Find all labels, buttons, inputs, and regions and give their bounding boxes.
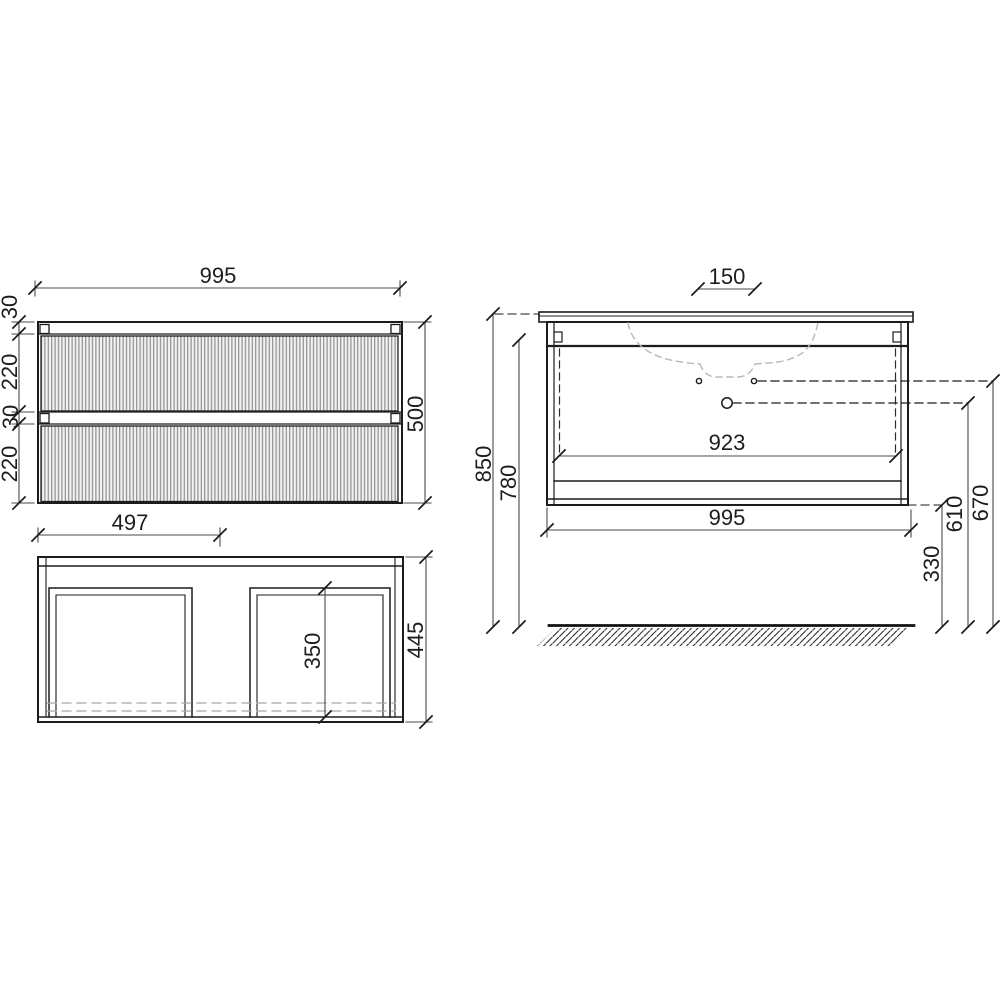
dim-label-elev-drain-height: 610 <box>944 496 966 533</box>
dim-label-elev-basin-height: 850 <box>473 446 495 483</box>
left-fixing-hole <box>696 378 701 383</box>
dim-label-front-overall-height: 500 <box>405 396 427 433</box>
dim-label-front-upper-drawer: 220 <box>0 354 21 391</box>
drain-hole <box>722 398 732 408</box>
dim-label-front-lower-drawer: 220 <box>0 446 21 483</box>
plan-view-carcass <box>38 557 403 722</box>
mid-rail-left-block <box>40 414 49 424</box>
dim-label-elev-carcass-height: 780 <box>498 465 520 502</box>
elevation-view <box>487 283 999 646</box>
right-hanger-bracket <box>893 332 901 342</box>
dim-label-plan-drawer-width: 497 <box>112 512 149 534</box>
dim-label-elev-tap-spacing: 150 <box>709 266 746 288</box>
dim-label-elev-inner-width: 923 <box>709 432 746 454</box>
plan-view <box>32 528 432 728</box>
dim-label-elev-supply-height: 670 <box>970 485 992 522</box>
right-fixing-hole <box>751 378 756 383</box>
top-rail-right-block <box>391 325 400 334</box>
dim-label-front-overall-width: 995 <box>200 265 237 287</box>
left-hanger-bracket <box>554 332 562 342</box>
front-view-cabinet <box>38 322 402 503</box>
washbasin-top <box>539 312 913 322</box>
dim-label-elev-clearance: 330 <box>921 546 943 583</box>
dim-label-plan-inner-depth: 350 <box>302 633 324 670</box>
lower-drawer-front <box>41 426 398 502</box>
dim-label-front-middle-frame: 30 <box>0 405 22 429</box>
mid-rail-right-block <box>391 414 400 424</box>
dim-label-elev-overall-width: 995 <box>709 507 746 529</box>
dim-label-front-top-frame: 30 <box>0 295 21 319</box>
floor-hatching <box>537 628 909 646</box>
top-rail-left-block <box>40 325 49 334</box>
technical-drawing-canvas: 995 30 220 30 220 500 497 445 350 150 92… <box>0 0 1000 1000</box>
elevation-cabinet <box>547 322 908 505</box>
floor-line <box>537 626 914 647</box>
upper-drawer-front <box>41 336 398 411</box>
dim-label-plan-depth: 445 <box>405 622 427 659</box>
front-view <box>12 281 431 509</box>
